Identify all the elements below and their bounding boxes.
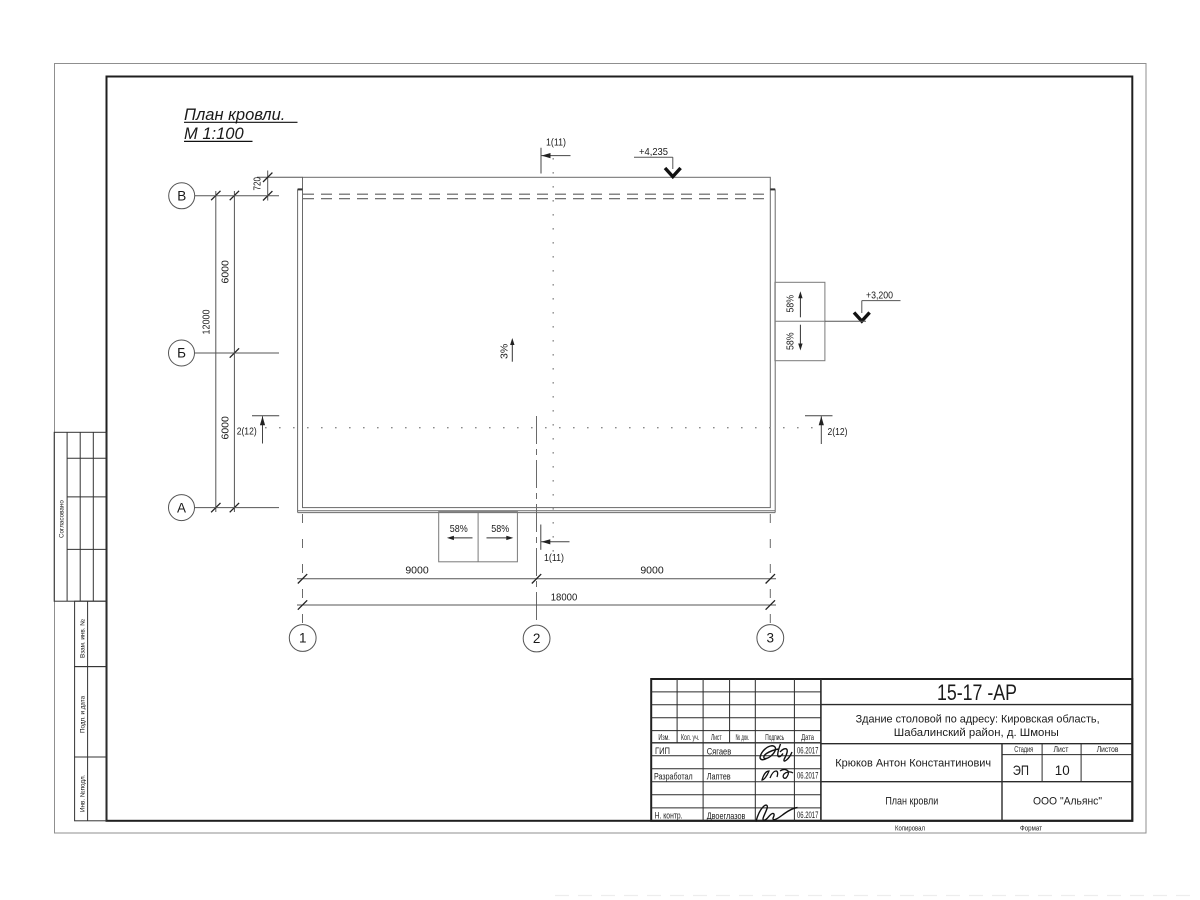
svg-text:Лист: Лист xyxy=(1054,744,1069,754)
svg-text:+3,200: +3,200 xyxy=(866,290,893,302)
svg-text:Формат: Формат xyxy=(1020,824,1042,833)
svg-text:Крюков Антон Константинович: Крюков Антон Константинович xyxy=(835,758,991,770)
svg-text:58%: 58% xyxy=(785,333,797,351)
svg-text:10: 10 xyxy=(1055,762,1070,778)
svg-text:06.2017: 06.2017 xyxy=(797,746,818,756)
svg-text:+4,235: +4,235 xyxy=(639,146,668,158)
svg-text:3%: 3% xyxy=(499,344,511,359)
svg-text:15-17 -АР: 15-17 -АР xyxy=(937,680,1017,705)
svg-text:ЭП: ЭП xyxy=(1013,762,1029,778)
svg-text:Листов: Листов xyxy=(1097,744,1119,754)
svg-text:Изм.: Изм. xyxy=(658,732,669,742)
svg-text:Лист: Лист xyxy=(711,732,722,742)
svg-text:№ док.: № док. xyxy=(736,732,750,742)
svg-text:12000: 12000 xyxy=(201,309,213,334)
svg-text:1: 1 xyxy=(299,631,307,646)
svg-text:Двоеглазов: Двоеглазов xyxy=(707,811,746,821)
svg-text:Лаптев: Лаптев xyxy=(707,772,731,782)
svg-text:Взам. инв. №: Взам. инв. № xyxy=(80,619,87,658)
svg-text:9000: 9000 xyxy=(640,565,664,577)
svg-text:Здание столовой по адресу: Кир: Здание столовой по адресу: Кировская обл… xyxy=(856,714,1100,726)
svg-text:Копировал: Копировал xyxy=(895,824,925,833)
svg-text:3: 3 xyxy=(767,631,775,646)
svg-text:58%: 58% xyxy=(491,523,509,535)
svg-text:Разработал: Разработал xyxy=(654,772,693,782)
svg-text:06.2017: 06.2017 xyxy=(797,810,818,820)
svg-text:2: 2 xyxy=(533,631,541,646)
svg-text:План кровли: План кровли xyxy=(885,796,938,808)
svg-text:720: 720 xyxy=(252,177,264,191)
svg-text:58%: 58% xyxy=(450,523,468,535)
svg-text:06.2017: 06.2017 xyxy=(797,771,818,781)
svg-text:58%: 58% xyxy=(785,295,797,313)
svg-text:Н. контр.: Н. контр. xyxy=(655,811,683,821)
svg-text:2(12): 2(12) xyxy=(237,426,257,438)
svg-text:Кол. уч.: Кол. уч. xyxy=(681,732,699,742)
svg-text:План кровли.: План кровли. xyxy=(184,106,285,124)
svg-text:Согласовано: Согласовано xyxy=(59,500,66,538)
svg-text:9000: 9000 xyxy=(405,565,429,577)
svg-text:А: А xyxy=(177,500,186,515)
svg-text:Инв. №подл.: Инв. №подл. xyxy=(80,774,87,812)
svg-text:2(12): 2(12) xyxy=(828,426,848,438)
svg-text:6000: 6000 xyxy=(219,416,231,440)
svg-text:ООО "Альянс": ООО "Альянс" xyxy=(1033,796,1102,808)
svg-text:1(11): 1(11) xyxy=(546,137,566,149)
svg-text:Подпись: Подпись xyxy=(765,732,784,742)
svg-text:Дата: Дата xyxy=(801,732,814,742)
svg-text:1(11): 1(11) xyxy=(544,552,564,564)
svg-text:Сягаев: Сягаев xyxy=(707,747,732,757)
svg-text:ГИП: ГИП xyxy=(655,746,670,756)
svg-text:18000: 18000 xyxy=(551,592,578,604)
svg-text:Подп. и дата: Подп. и дата xyxy=(80,695,87,733)
svg-text:Стадия: Стадия xyxy=(1014,744,1033,754)
svg-text:Шабалинский район, д. Шмоны: Шабалинский район, д. Шмоны xyxy=(894,727,1059,739)
svg-text:Б: Б xyxy=(177,346,186,361)
svg-text:М 1:100: М 1:100 xyxy=(184,125,244,143)
svg-text:6000: 6000 xyxy=(219,260,231,284)
svg-text:В: В xyxy=(177,189,186,204)
